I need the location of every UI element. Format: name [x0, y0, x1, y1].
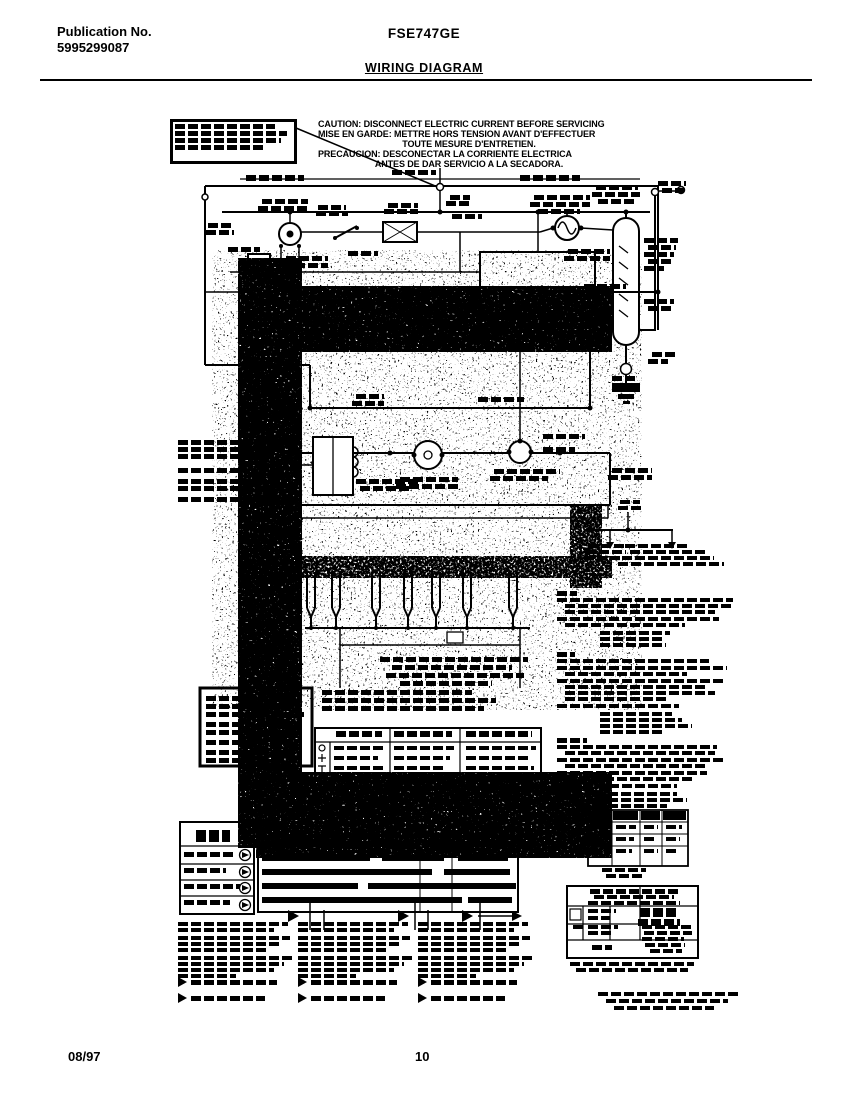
garbled-line [298, 936, 410, 940]
garbled-line [418, 936, 530, 940]
garbled-line [565, 764, 705, 768]
garbled-line [606, 999, 728, 1003]
garbled-line [492, 323, 568, 328]
garbled-line [666, 837, 680, 841]
note-box [170, 119, 297, 164]
garbled-line [394, 731, 452, 737]
garbled-line [592, 825, 608, 829]
garbled-line [184, 900, 230, 905]
garbled-line [644, 837, 656, 841]
garbled-line [384, 209, 418, 214]
model-number: FSE747GE [0, 26, 848, 41]
garbled-line [606, 874, 644, 878]
garbled-line [178, 968, 274, 972]
garbled-line [618, 562, 724, 566]
garbled-line [600, 637, 662, 641]
garbled-line [565, 604, 731, 608]
garbled-line [600, 643, 666, 647]
garbled-line [644, 252, 674, 257]
garbled-line [588, 901, 680, 905]
garbled-line [298, 974, 356, 978]
garbled-line [418, 956, 532, 960]
garbled-line [658, 181, 686, 186]
garbled-line [640, 908, 678, 917]
garbled-line [418, 974, 476, 978]
garbled-line [394, 786, 448, 790]
garbled-line [298, 922, 408, 926]
garbled-line [478, 397, 524, 402]
garbled-line [392, 665, 512, 670]
garbled-line [178, 936, 290, 940]
garbled-line [666, 825, 682, 829]
garbled-line [396, 484, 460, 489]
garbled-line [311, 996, 385, 1001]
garbled-line [600, 730, 662, 734]
garbled-line [622, 556, 714, 560]
caution-line-fr-1: MISE EN GARDE: METTRE HORS TENSION AVANT… [318, 129, 620, 139]
garbled-line [282, 263, 328, 268]
caution-line-es-1: PRECAUCION: DESCONECTAR LA CORRIENTE ELE… [318, 149, 620, 159]
garbled-line [311, 980, 397, 985]
garbled-line [336, 731, 382, 737]
garbled-line [466, 756, 530, 760]
garbled-line [520, 175, 580, 181]
garbled-line [557, 679, 725, 683]
garbled-line [650, 949, 682, 953]
garbled-line [543, 447, 575, 452]
garbled-line [488, 315, 574, 320]
garbled-line [596, 185, 638, 190]
garbled-line [206, 696, 302, 701]
garbled-line [348, 251, 378, 256]
garbled-line [258, 206, 310, 211]
garbled-line [557, 598, 733, 602]
garbled-line [494, 469, 560, 474]
garbled-line [191, 996, 265, 1001]
garbled-line [557, 666, 727, 670]
garbled-line [322, 690, 472, 695]
garbled-line [568, 249, 610, 254]
garbled-line [446, 201, 472, 206]
garbled-line [418, 922, 528, 926]
garbled-line [394, 766, 444, 770]
garbled-line [466, 766, 534, 770]
garbled-line [648, 306, 672, 311]
garbled-line [206, 758, 266, 763]
garbled-line [644, 266, 664, 271]
garbled-line [386, 673, 524, 678]
garbled-line [614, 1006, 714, 1010]
garbled-line [431, 996, 505, 1001]
garbled-line [594, 895, 674, 899]
garbled-line [588, 909, 616, 913]
garbled-line [228, 247, 260, 252]
garbled-line [394, 746, 454, 750]
garbled-line [191, 980, 277, 985]
garbled-line [206, 704, 294, 709]
garbled-line [418, 962, 524, 966]
garbled-line [590, 889, 678, 894]
garbled-line [586, 550, 626, 554]
garbled-line [334, 766, 384, 770]
garbled-line [662, 188, 684, 193]
garbled-line [565, 672, 687, 676]
garbled-line [246, 175, 304, 181]
garbled-line [625, 544, 687, 548]
garbled-line [262, 199, 308, 204]
garbled-line [565, 623, 685, 627]
garbled-line [565, 610, 715, 614]
garbled-line [588, 931, 614, 935]
garbled-line [592, 837, 606, 841]
garbled-line [557, 738, 587, 743]
garbled-line [206, 230, 234, 235]
garbled-line [452, 214, 482, 219]
garbled-line [557, 771, 707, 775]
garbled-line [618, 506, 642, 510]
garbled-line [557, 784, 677, 788]
garbled-line [450, 195, 470, 200]
garbled-line [466, 731, 532, 737]
garbled-line [298, 948, 386, 952]
garbled-line [206, 712, 304, 717]
garbled-line [630, 550, 708, 554]
garbled-line [184, 884, 240, 889]
garbled-line [431, 980, 517, 985]
garbled-line [666, 849, 678, 853]
garbled-line [576, 968, 688, 972]
scanned-wiring-diagram-page: Publication No. 5995299087 FSE747GE WIRI… [0, 0, 848, 1100]
header-rule [40, 79, 812, 81]
garbled-line [298, 942, 402, 946]
garbled-line [178, 962, 284, 966]
garbled-line [644, 238, 678, 243]
garbled-line [598, 199, 636, 204]
garbled-line [394, 776, 452, 780]
garbled-line [595, 804, 667, 808]
garbled-line [557, 745, 717, 749]
garbled-line [648, 245, 676, 250]
garbled-line [600, 631, 670, 635]
garbled-line [570, 962, 694, 966]
garbled-line [595, 798, 687, 802]
garbled-line [334, 786, 386, 790]
garbled-line [652, 352, 678, 357]
garbled-line [322, 706, 484, 711]
garbled-line [178, 922, 288, 926]
garbled-line [322, 698, 496, 703]
garbled-line [616, 825, 636, 829]
garbled-line [573, 925, 583, 929]
garbled-line [334, 756, 378, 760]
garbled-line [178, 497, 298, 502]
footer-page-number: 10 [415, 1049, 429, 1064]
garbled-line [648, 359, 668, 364]
caution-line-fr-2: TOUTE MESURE D'ENTRETIEN. [318, 139, 620, 149]
garbled-line [592, 945, 612, 950]
garbled-line [334, 776, 380, 780]
garbled-line [418, 948, 506, 952]
garbled-line [298, 928, 394, 932]
garbled-line [565, 751, 715, 755]
caution-line-es-2: ANTES DE DAR SERVICIO A LA SECADORA. [318, 159, 620, 169]
garbled-line [178, 974, 236, 978]
garbled-line [644, 299, 674, 304]
garbled-line [466, 786, 532, 790]
garbled-line [565, 685, 707, 689]
garbled-line [178, 479, 280, 484]
garbled-line [642, 925, 694, 929]
garbled-line [208, 223, 232, 228]
garbled-line [334, 746, 386, 750]
footer-date: 08/97 [68, 1049, 101, 1064]
garbled-line [178, 486, 272, 491]
garbled-line [178, 454, 274, 459]
garbled-line [418, 942, 522, 946]
garbled-line [598, 992, 738, 996]
garbled-line [588, 916, 610, 920]
garbled-line [592, 849, 608, 853]
garbled-line [600, 724, 692, 728]
garbled-line [557, 591, 577, 596]
garbled-line [394, 756, 450, 760]
garbled-line [466, 776, 526, 780]
garbled-line [616, 849, 632, 853]
garbled-line [298, 962, 404, 966]
garbled-line [418, 968, 514, 972]
garbled-line [400, 681, 492, 686]
publication-number: 5995299087 [57, 40, 152, 56]
garbled-line [557, 704, 679, 708]
garbled-line [184, 852, 236, 857]
garbled-line [644, 931, 692, 935]
garbled-line [206, 722, 288, 727]
garbled-line [644, 825, 658, 829]
garbled-line [178, 956, 292, 960]
garbled-line [557, 652, 575, 657]
garbled-line [534, 195, 590, 200]
garbled-line [178, 447, 284, 452]
garbled-line [380, 657, 528, 662]
garbled-line [318, 205, 346, 210]
garbled-line [178, 928, 274, 932]
garbled-line [184, 868, 226, 873]
garbled-line [352, 401, 384, 406]
garbled-line [206, 740, 278, 745]
garbled-line [616, 837, 634, 841]
garbled-line [286, 256, 328, 261]
garbled-line [178, 948, 266, 952]
garbled-line [612, 468, 652, 473]
garbled-line [648, 259, 672, 264]
garbled-line [400, 477, 458, 482]
garbled-line [644, 849, 658, 853]
garbled-line [564, 256, 610, 261]
garbled-line [178, 440, 292, 445]
garbled-line [588, 544, 624, 548]
garbled-line [538, 209, 580, 214]
caution-block: CAUTION: DISCONNECT ELECTRIC CURRENT BEF… [318, 119, 620, 169]
garbled-line [466, 746, 536, 750]
garbled-line [178, 942, 282, 946]
garbled-line [392, 170, 436, 175]
garbled-line [206, 750, 292, 755]
garbled-line [206, 730, 298, 735]
garbled-line [600, 718, 682, 722]
garbled-line [565, 777, 695, 781]
garbled-line [592, 192, 640, 197]
garbled-line [388, 203, 418, 208]
garbled-line [557, 659, 709, 663]
garbled-line [557, 758, 725, 762]
garbled-line [490, 476, 548, 481]
page-title: WIRING DIAGRAM [0, 61, 848, 75]
garbled-line [565, 691, 715, 695]
garbled-line [178, 468, 240, 473]
garbled-line [298, 956, 412, 960]
garbled-line [557, 617, 719, 621]
caution-line-en: CAUTION: DISCONNECT ELECTRIC CURRENT BEF… [318, 119, 620, 129]
garbled-line [595, 792, 677, 796]
garbled-line [608, 475, 652, 480]
garbled-line [602, 868, 646, 872]
garbled-line [642, 937, 684, 941]
garbled-line [530, 202, 590, 207]
garbled-line [356, 394, 384, 399]
garbled-line [645, 943, 685, 947]
garbled-line [584, 284, 626, 289]
garbled-line [620, 500, 640, 504]
garbled-line [196, 830, 230, 842]
garbled-line [600, 712, 672, 716]
garbled-line [543, 434, 585, 439]
garbled-line [316, 211, 348, 216]
garbled-line [565, 697, 667, 701]
garbled-line [588, 925, 618, 929]
garbled-line [612, 376, 638, 381]
garbled-line [418, 928, 514, 932]
garbled-line [298, 968, 394, 972]
